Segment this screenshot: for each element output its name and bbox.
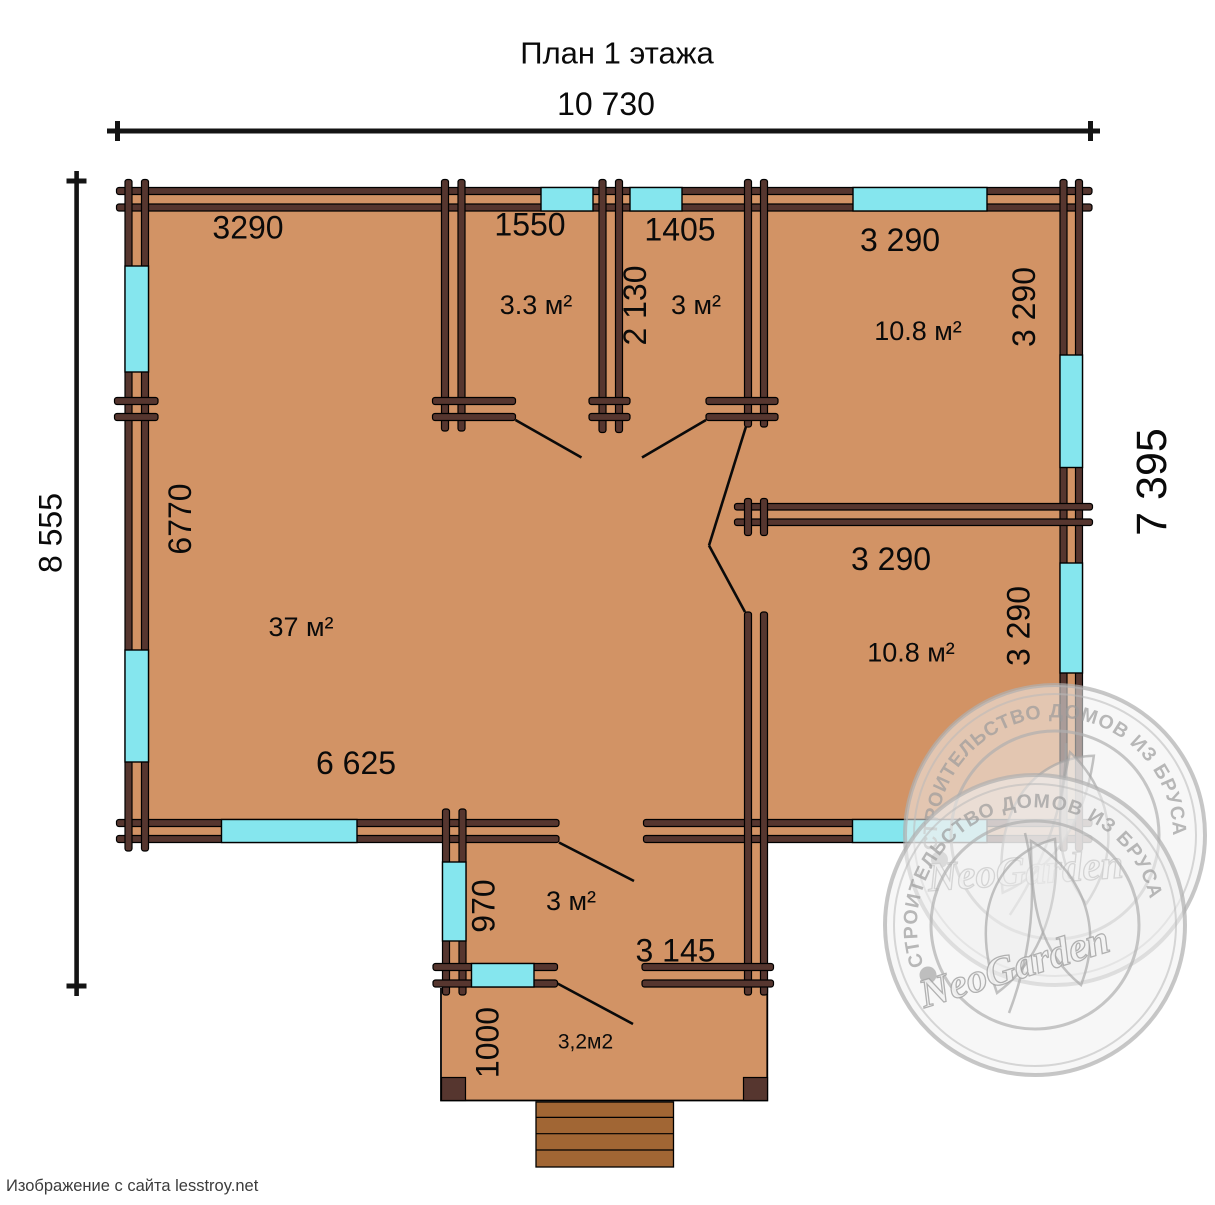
svg-text:3290: 3290	[212, 210, 283, 246]
svg-text:3 290: 3 290	[1006, 267, 1042, 347]
svg-text:7 395: 7 395	[1128, 428, 1176, 536]
svg-text:3,2м2: 3,2м2	[558, 1031, 613, 1054]
svg-text:3.3 м²: 3.3 м²	[500, 290, 573, 320]
svg-text:10.8 м²: 10.8 м²	[874, 316, 962, 346]
svg-text:6770: 6770	[162, 483, 198, 554]
svg-text:План 1 этажа: План 1 этажа	[520, 36, 714, 71]
svg-text:10.8 м²: 10.8 м²	[867, 638, 955, 668]
svg-text:3 м²: 3 м²	[546, 886, 596, 916]
svg-text:3 145: 3 145	[635, 933, 715, 969]
svg-text:1405: 1405	[644, 212, 715, 248]
svg-text:37 м²: 37 м²	[268, 612, 333, 642]
svg-text:3 290: 3 290	[851, 541, 931, 577]
svg-text:8 555: 8 555	[33, 493, 69, 573]
svg-text:970: 970	[466, 879, 502, 932]
svg-text:3 м²: 3 м²	[671, 290, 721, 320]
svg-text:2 130: 2 130	[617, 265, 653, 345]
svg-text:Изображение с сайта lesstroy.n: Изображение с сайта lesstroy.net	[6, 1177, 259, 1195]
svg-text:10 730: 10 730	[557, 86, 655, 122]
svg-text:6 625: 6 625	[316, 745, 396, 781]
svg-text:1000: 1000	[470, 1007, 506, 1078]
svg-text:3 290: 3 290	[860, 222, 940, 258]
svg-text:3 290: 3 290	[1001, 586, 1037, 666]
svg-text:1550: 1550	[494, 207, 565, 243]
